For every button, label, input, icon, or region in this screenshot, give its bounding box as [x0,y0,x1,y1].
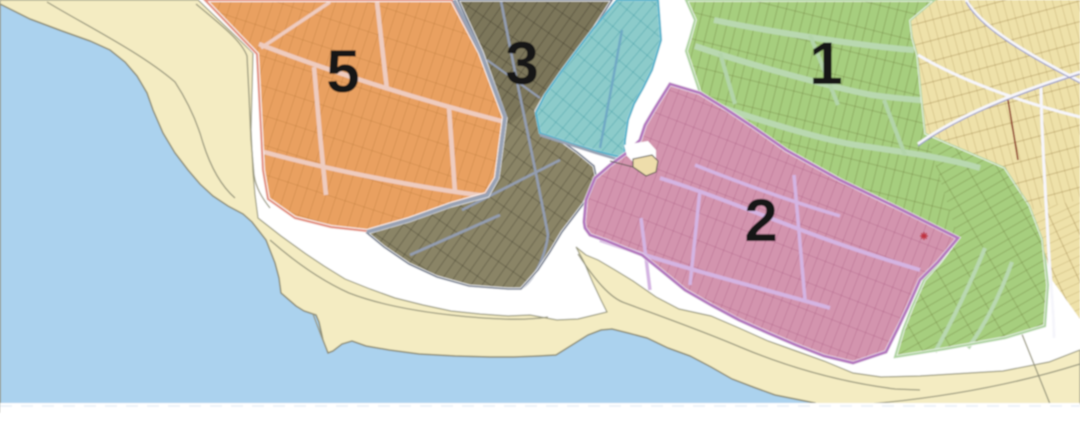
svg-text:1: 1 [809,30,842,97]
svg-text:5: 5 [326,38,359,105]
svg-text:3: 3 [505,30,538,97]
svg-text:2: 2 [744,187,777,254]
